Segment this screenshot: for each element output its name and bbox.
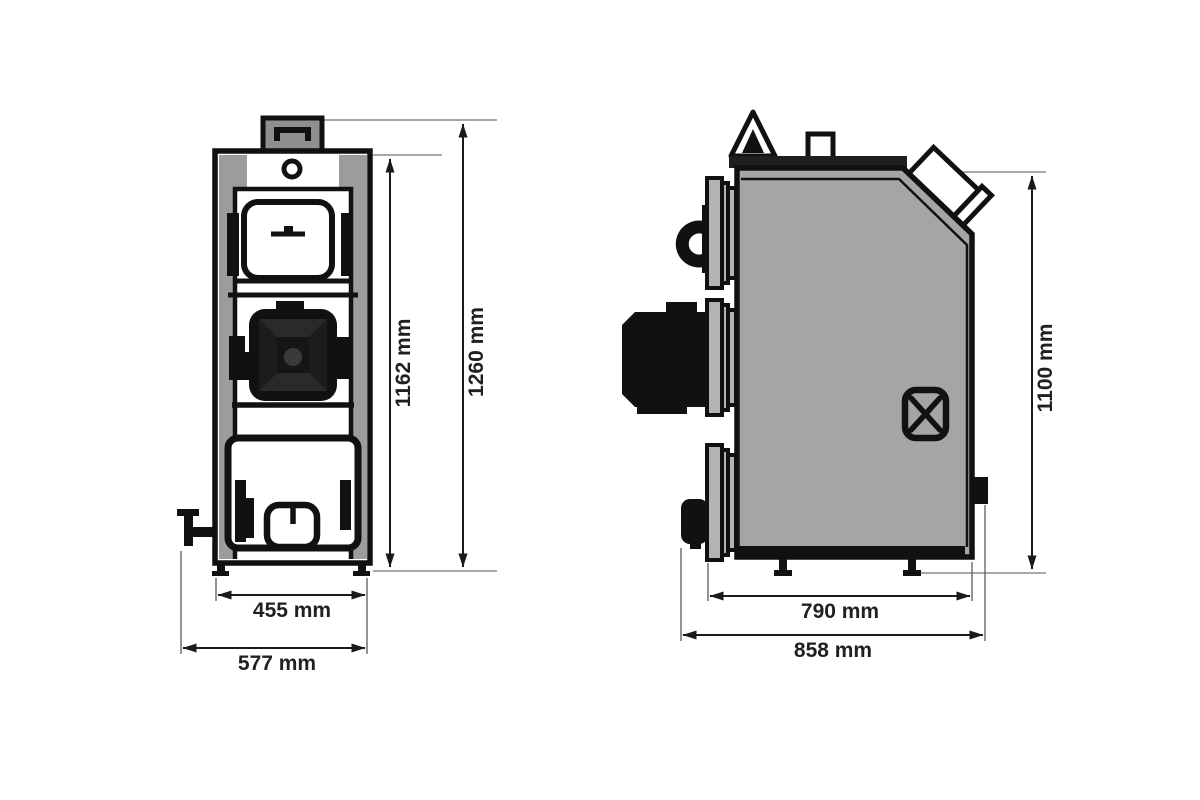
front-foot-right-stem — [358, 563, 366, 572]
low-flange-bar1 — [707, 445, 722, 560]
upper-door — [227, 202, 353, 278]
dim-label-858: 858 mm — [794, 639, 872, 662]
ash-door — [228, 438, 358, 548]
upper-door-hinge-right — [341, 213, 353, 276]
fuel-door-flange — [622, 300, 736, 415]
fuel-door-hinge-right — [337, 337, 350, 379]
upper-flange-bar1 — [707, 178, 722, 288]
fan-motor — [622, 302, 707, 414]
inspection-port — [905, 390, 946, 438]
dim-front-body-height: 1162 mm — [390, 159, 415, 567]
front-foot-right-base — [353, 571, 370, 576]
upper-door-flange — [682, 178, 736, 288]
upper-door-panel — [244, 202, 332, 278]
door-handle — [682, 227, 705, 261]
dim-front-total-width: 577 mm — [183, 648, 365, 675]
ash-door-knob-tab — [690, 543, 701, 549]
dim-label-790: 790 mm — [801, 600, 879, 623]
upper-door-handle-nub — [284, 226, 293, 234]
mid-flange-bar1 — [707, 300, 722, 415]
upper-door-hinge-left — [227, 213, 239, 276]
side-foot-right-base — [903, 570, 921, 576]
top-right-corner-panel — [339, 155, 367, 187]
dim-label-1100: 1100 mm — [1034, 324, 1057, 413]
dim-side-body-depth: 790 mm — [710, 596, 970, 623]
safety-valve — [731, 112, 775, 156]
top-left-corner-panel — [219, 155, 247, 187]
side-foot-left-base — [774, 570, 792, 576]
dim-front-body-width: 455 mm — [218, 595, 365, 622]
dim-label-455: 455 mm — [253, 599, 331, 622]
ash-door-flange — [681, 445, 736, 560]
dim-label-577: 577 mm — [238, 652, 316, 675]
drain-valve-pipe — [191, 527, 217, 537]
front-view: 1162 mm 1260 mm 455 mm 577 mm — [177, 118, 497, 675]
fuel-door-hinge-left-step — [229, 352, 251, 380]
base-strip — [738, 546, 965, 559]
fuel-door-knob — [284, 348, 302, 366]
ash-door-knob — [681, 499, 708, 544]
thermostat-hole — [284, 161, 300, 177]
fan-motor-base — [637, 407, 687, 414]
ash-door-latch-left-step — [235, 498, 254, 538]
dim-front-total-height: 1260 mm — [463, 124, 488, 567]
drain-valve — [177, 509, 217, 546]
dim-label-1260: 1260 mm — [465, 307, 488, 397]
dim-side-total-depth: 858 mm — [683, 635, 983, 662]
side-body-outline — [737, 168, 972, 557]
drain-valve-cap — [177, 509, 199, 516]
rear-connection-stub — [972, 477, 988, 504]
fan-motor-body — [622, 312, 707, 407]
front-foot-left-base — [212, 571, 229, 576]
dim-side-height: 1100 mm — [1032, 176, 1057, 569]
dim-label-1162: 1162 mm — [392, 319, 415, 408]
side-base — [738, 546, 965, 576]
front-foot-left-stem — [217, 563, 225, 572]
drawing-canvas: 1162 mm 1260 mm 455 mm 577 mm — [0, 0, 1200, 800]
boiler-dimension-drawing: 1162 mm 1260 mm 455 mm 577 mm — [0, 0, 1200, 800]
side-view: 1100 mm 790 mm 858 mm — [622, 112, 1057, 662]
ash-door-latch-right — [340, 480, 351, 530]
